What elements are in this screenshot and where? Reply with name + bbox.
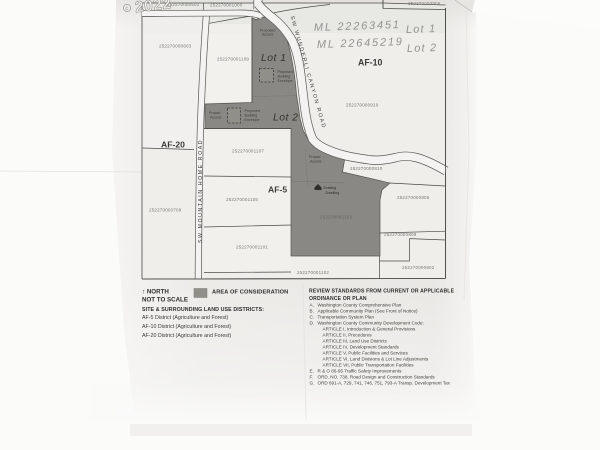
svg-text:AF-5: AF-5 xyxy=(268,184,287,194)
svg-text:AREA OF CONSIDERATION: AREA OF CONSIDERATION xyxy=(212,290,288,296)
svg-text:252270001101: 252270001101 xyxy=(236,245,268,250)
svg-text:B.: B. xyxy=(310,309,314,314)
svg-text:Access: Access xyxy=(210,116,222,120)
svg-text:252270000910: 252270000910 xyxy=(346,103,379,108)
svg-text:252270000805: 252270000805 xyxy=(397,195,430,200)
svg-text:252270000810: 252270000810 xyxy=(350,166,383,171)
svg-text:Applicable Community Plan (See: Applicable Community Plan (See Front of … xyxy=(318,309,419,314)
svg-text:AF-20 District (Agriculture an: AF-20 District (Agriculture and Forest) xyxy=(142,333,231,339)
svg-text:Proposed: Proposed xyxy=(278,70,293,74)
svg-text:ORD. NO. 738, Road Design and: ORD. NO. 738, Road Design and Constructi… xyxy=(318,375,436,380)
svg-text:Building: Building xyxy=(245,114,258,118)
svg-text:Existing: Existing xyxy=(324,186,337,190)
svg-text:252270001105: 252270001105 xyxy=(226,197,258,202)
svg-text:Access: Access xyxy=(310,160,322,164)
svg-text:Dwelling: Dwelling xyxy=(326,191,340,195)
svg-text:SW MOUNTAIN HOME ROAD: SW MOUNTAIN HOME ROAD xyxy=(198,139,204,243)
svg-text:252270000809: 252270000809 xyxy=(384,232,417,237)
svg-text:Envelope: Envelope xyxy=(245,118,260,122)
svg-text:R & O 86-95 Traffic Safety Imp: R & O 86-95 Traffic Safety Improvements xyxy=(318,369,403,374)
svg-text:Washington County Community De: Washington County Community Development … xyxy=(318,321,424,326)
svg-text:Propsd: Propsd xyxy=(209,111,220,115)
svg-text:Access: Access xyxy=(262,33,274,37)
svg-text:SITE & SURROUNDING LAND USE DI: SITE & SURROUNDING LAND USE DISTRICTS: xyxy=(142,307,264,313)
svg-text:252270000501: 252270000501 xyxy=(167,2,200,7)
svg-text:A.: A. xyxy=(310,303,314,308)
svg-text:AF-20: AF-20 xyxy=(161,140,185,150)
svg-text:Envelope: Envelope xyxy=(278,79,293,83)
svg-text:ARTICLE VI, Land Divisions & L: ARTICLE VI, Land Divisions & Lot Line Ad… xyxy=(323,357,429,362)
svg-text:252270001103: 252270001103 xyxy=(320,215,352,220)
svg-text:E.: E. xyxy=(310,369,314,374)
svg-text:C.: C. xyxy=(310,315,315,320)
svg-text:Transportation System Plan: Transportation System Plan xyxy=(318,315,375,320)
svg-text:ARTICLE III, Land Use District: ARTICLE III, Land Use Districts xyxy=(323,339,388,344)
svg-text:252270000802: 252270000802 xyxy=(402,265,435,270)
svg-text:ARTICLE IV, Development Standa: ARTICLE IV, Development Standards xyxy=(323,345,400,350)
svg-text:Lot 1: Lot 1 xyxy=(406,23,437,36)
svg-text:Proposed: Proposed xyxy=(245,109,260,113)
svg-text:ORD 691-A, 729, 741, 746, 751,: ORD 691-A, 729, 741, 746, 751, 793-A Tra… xyxy=(318,381,451,386)
svg-text:252270001109: 252270001109 xyxy=(217,57,249,62)
svg-text:ARTICLE VII, Public Transporta: ARTICLE VII, Public Transportation Facil… xyxy=(323,363,415,368)
svg-text:Washington County Comprehensiv: Washington County Comprehensive Plan xyxy=(318,303,402,308)
svg-text:252270000709: 252270000709 xyxy=(149,208,182,213)
svg-text:ARTICLE II, Procedures: ARTICLE II, Procedures xyxy=(323,333,373,338)
svg-text:AF-10 District (Agriculture an: AF-10 District (Agriculture and Forest) xyxy=(142,324,231,330)
svg-text:ORDINANCE OR PLAN: ORDINANCE OR PLAN xyxy=(309,296,367,302)
svg-text:Lot 1: Lot 1 xyxy=(261,52,286,64)
svg-text:252270001102: 252270001102 xyxy=(297,270,329,275)
svg-text:Lot 2: Lot 2 xyxy=(407,42,438,55)
svg-text:252270001107: 252270001107 xyxy=(232,149,264,154)
svg-text:G.: G. xyxy=(310,381,315,386)
svg-text:D.: D. xyxy=(310,321,315,326)
svg-text:AF-5 District (Agriculture and: AF-5 District (Agriculture and Forest) xyxy=(142,315,228,321)
svg-text:252270000603: 252270000603 xyxy=(159,44,192,49)
svg-text:Propsd: Propsd xyxy=(309,155,320,159)
svg-text:252270001000: 252270001000 xyxy=(210,3,243,8)
svg-text:252270000906: 252270000906 xyxy=(408,1,441,6)
svg-text:Building: Building xyxy=(278,75,291,79)
svg-text:REVIEW STANDARDS FROM CURRENT: REVIEW STANDARDS FROM CURRENT OR APPLICA… xyxy=(309,289,455,295)
svg-text:↑ NORTH: ↑ NORTH xyxy=(142,289,169,296)
svg-text:AF-10: AF-10 xyxy=(358,58,383,68)
svg-text:Lot 2: Lot 2 xyxy=(273,112,298,124)
svg-text:ARTICLE I, Introduction & Gene: ARTICLE I, Introduction & General Provis… xyxy=(323,327,417,332)
svg-text:NOT TO SCALE: NOT TO SCALE xyxy=(142,296,188,303)
svg-text:F.: F. xyxy=(310,375,314,380)
svg-text:ARTICLE V, Public Facilities a: ARTICLE V, Public Facilities and Service… xyxy=(323,351,409,356)
